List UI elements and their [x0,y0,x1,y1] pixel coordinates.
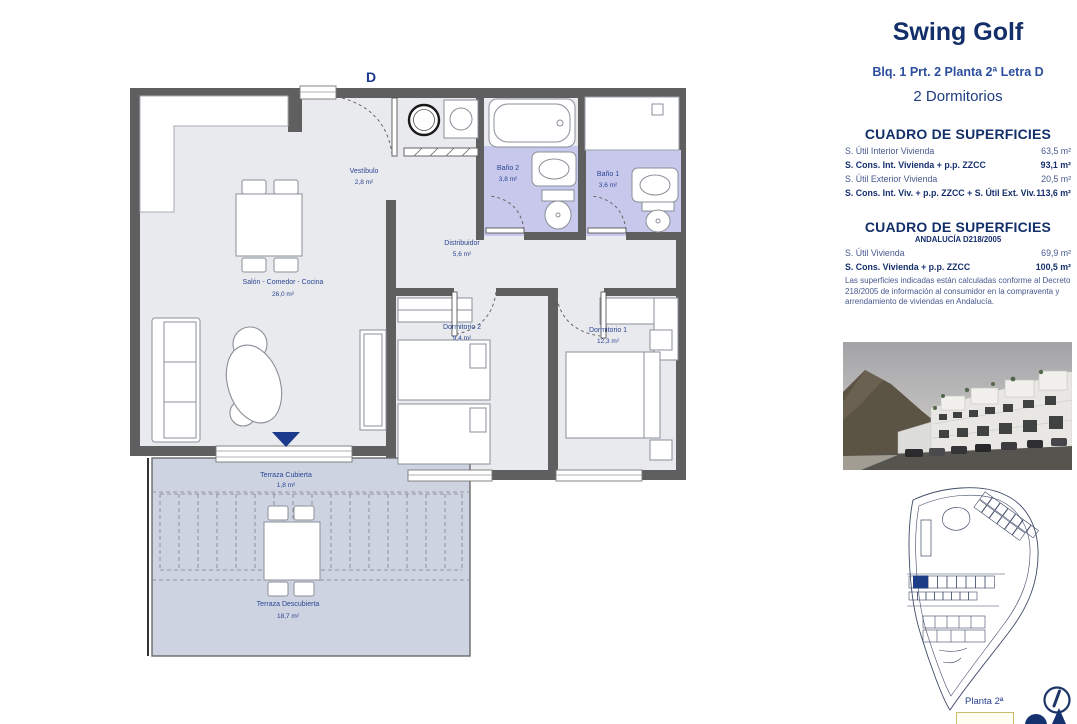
room-area-terraza-cubierta: 1,8 m² [277,482,296,489]
table-row: S. Cons. Vivienda + p.p. ZZCC 100,5 m² [845,262,1071,272]
room-area-dormitorio2: 9,4 m² [453,335,472,342]
bathtub [489,99,575,147]
room-label-vestibulo: Vestíbulo [350,168,379,175]
andalucia-table-subtitle: ANDALUCÍA D218/2005 [843,235,1073,244]
table-row: S. Útil Interior Vivienda 63,5 m² [845,146,1071,156]
row-value: 69,9 m² [1041,248,1071,258]
table-row: S. Cons. Int. Viv. + p.p. ZZCC + S. Útil… [845,188,1071,198]
room-area-bano2: 3,8 m² [499,176,518,183]
table-row: S. Cons. Int. Vivienda + p.p. ZZCC 93,1 … [845,160,1071,170]
table-row: S. Útil Vivienda 69,9 m² [845,248,1071,258]
legal-disclaimer: Las superficies indicadas están calculad… [845,276,1071,308]
surfaces-table-title: CUADRO DE SUPERFICIES [843,126,1073,142]
developer-logo [1022,706,1072,724]
room-area-dormitorio1: 12,3 m² [597,338,620,345]
room-label-bano1: Baño 1 [597,171,619,178]
washbasin-bath1 [632,168,678,202]
room-label-dormitorio2: Dormitorio 2 [443,324,481,331]
floorplan-sheet: D [0,0,1077,724]
site-plan [893,482,1043,716]
development-title: Swing Golf [843,18,1073,47]
table-row: S. Útil Exterior Vivienda 20,5 m² [845,174,1071,184]
room-area-bano1: 3,6 m² [599,182,618,189]
room-area-salon: 26,0 m² [272,291,295,298]
row-label: S. Útil Interior Vivienda [845,146,934,156]
row-value: 63,5 m² [1041,146,1071,156]
wardrobe-dorm2 [398,298,472,322]
row-label: S. Útil Vivienda [845,248,905,258]
shower [585,97,679,150]
row-label: S. Cons. Vivienda + p.p. ZZCC [845,262,970,272]
row-label: S. Cons. Int. Vivienda + p.p. ZZCC [845,160,986,170]
sofa [152,318,200,442]
room-label-bano2: Baño 2 [497,165,519,172]
row-label: S. Útil Exterior Vivienda [845,174,937,184]
room-label-distribuidor: Distribuidor [444,240,480,247]
andalucia-table-title: CUADRO DE SUPERFICIES [843,219,1073,235]
washer [409,105,439,135]
unit-reference: Blq. 1 Prt. 2 Planta 2ª Letra D [843,65,1073,79]
row-value: 93,1 m² [1041,160,1071,170]
tv-unit [360,330,386,430]
room-label-terraza-cubierta: Terraza Cubierta [260,472,312,479]
bedrooms-label: 2 Dormitorios [843,88,1073,105]
room-area-terraza-descubierta: 18,7 m² [277,613,300,620]
washbasin-bath2 [532,152,576,186]
laundry-sink [444,100,478,138]
entry-letter: D [366,69,376,85]
room-label-terraza-descubierta: Terraza Descubierta [257,601,320,608]
room-label-salon: Salón - Comedor - Cocina [243,279,324,286]
certificate-badge [956,712,1014,724]
terrace: Terraza Cubierta 1,8 m² Terraza Descubie… [148,458,470,656]
highlighted-unit [913,576,928,589]
floorplan-drawing: D [0,0,840,724]
row-value: 100,5 m² [1036,262,1071,272]
row-label: S. Cons. Int. Viv. + p.p. ZZCC + S. Útil… [845,188,1035,198]
row-value: 20,5 m² [1041,174,1071,184]
row-value: 113,6 m² [1036,188,1071,198]
room-area-vestibulo: 2,8 m² [355,179,374,186]
laundry-slider [404,148,478,156]
room-label-dormitorio1: Dormitorio 1 [589,327,627,334]
floor-level-label: Planta 2ª [965,696,1003,707]
building-photo [843,342,1072,470]
room-area-distribuidor: 5,6 m² [453,251,472,258]
site-buildings-lower [923,616,985,663]
